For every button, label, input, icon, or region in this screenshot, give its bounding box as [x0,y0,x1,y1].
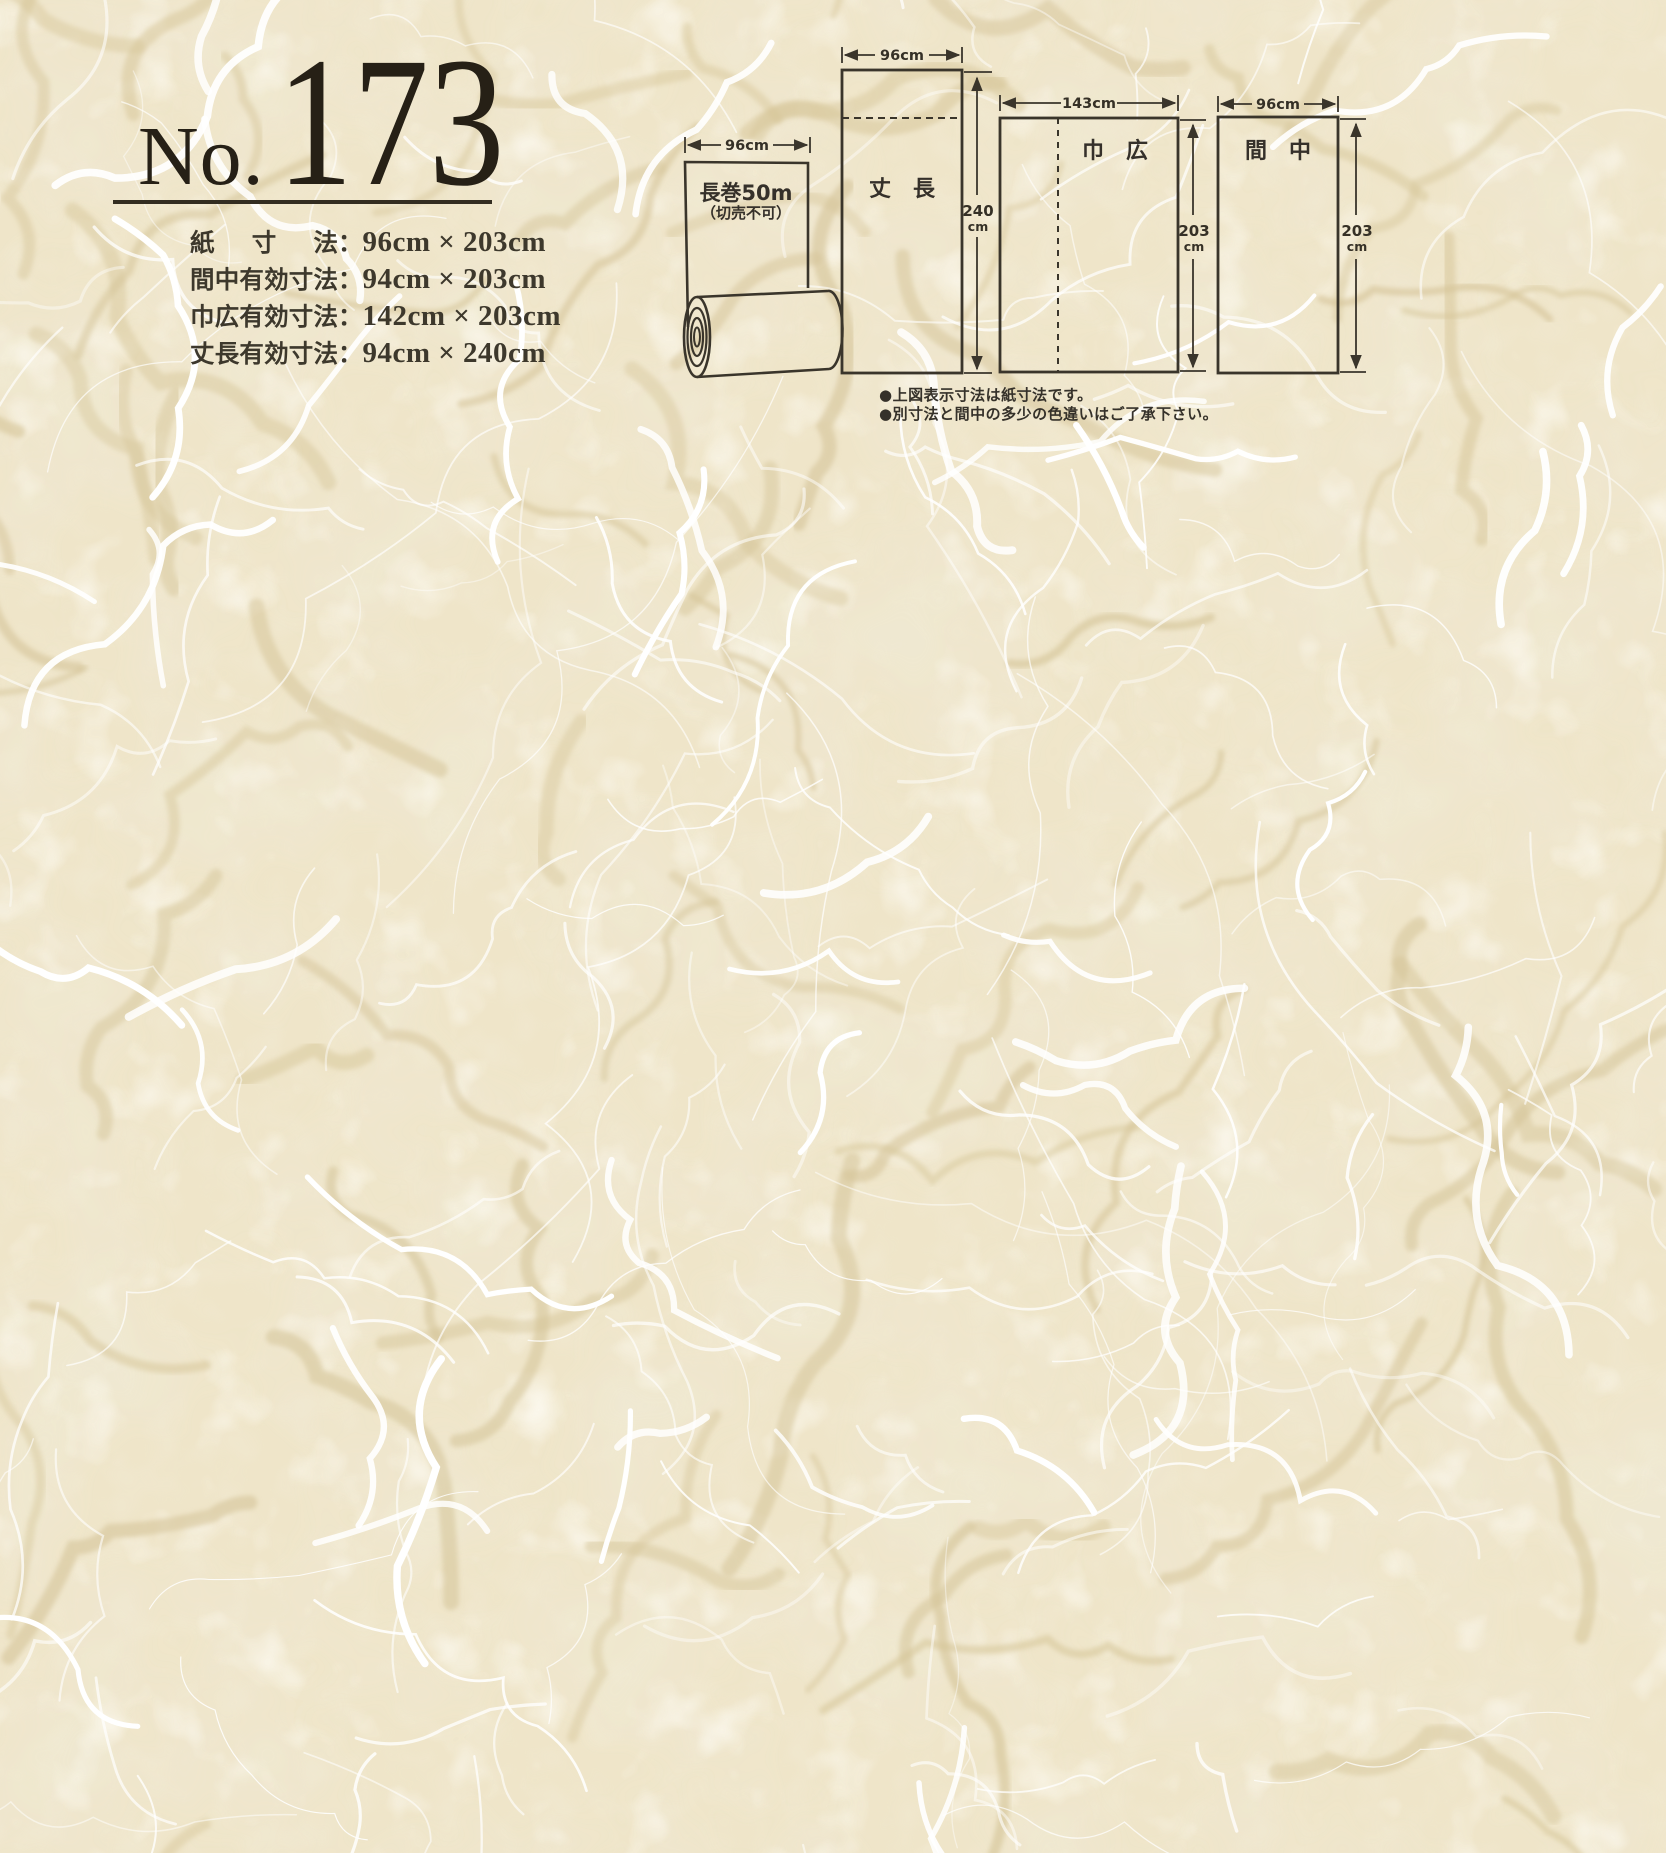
spec-label: 間中有効寸法 [190,262,338,299]
spec-row-manaka: 間中有効寸法：94cm × 203cm [190,261,517,298]
spec-row-habahiro: 巾広有効寸法：142cm × 203cm [190,298,517,335]
footnote-1: ●上図表示寸法は紙寸法です。 [879,386,1093,404]
takenaga-width-label: 96cm [880,48,924,64]
spec-value: 96cm × 203cm [363,224,517,261]
takenaga-height-unit: cm [968,219,988,234]
spec-label: 紙 寸 法 [190,225,338,262]
footnote-2: ●別寸法と間中の多少の色違いはご了承下さい。 [879,405,1218,423]
roll-end-cap [828,291,843,369]
takenaga-sheet-outline [842,70,962,373]
spec-colon: ： [338,304,363,331]
manaka-height-unit: cm [1347,239,1367,254]
manaka-height-value: 203 [1341,222,1372,240]
spec-colon: ： [338,230,363,257]
roll-width-label: 96cm [725,138,769,154]
manaka-width-label: 96cm [1256,97,1300,113]
habahiro-width-label: 143cm [1062,96,1116,112]
habahiro-diagram: 巾 広 143cm 203 cm [1000,95,1210,372]
roll-diagram: 96cm 長巻50m （切売不可） [684,137,843,377]
spec-value: 94cm × 240cm [363,335,517,372]
catalog-number: 173 [277,30,505,215]
spec-label: 巾広有効寸法 [190,299,338,336]
roll-title: 長巻50m [699,181,792,205]
catalog-page: No. 173 紙 寸 法：96cm × 203cm 間中有効寸法：94cm ×… [0,0,1666,1853]
spec-value: 142cm × 203cm [363,298,517,335]
manaka-diagram: 間 中 96cm 203 cm [1218,96,1373,373]
spec-value: 94cm × 203cm [363,261,517,298]
takenaga-label: 丈 長 [869,177,936,202]
roll-body-bottom [697,369,829,377]
catalog-no-prefix: No. [138,115,265,199]
dimension-diagrams: 96cm 長巻50m （切売不可） 丈 長 96cm 240 cm [545,25,1395,445]
title-underline [113,200,492,204]
title-block: No. 173 [138,30,554,215]
roll-core-ring [691,318,703,356]
manaka-label: 間 中 [1245,139,1311,164]
roll-subtitle: （切売不可） [701,204,791,222]
takenaga-height-value: 240 [962,202,993,220]
habahiro-height-value: 203 [1178,222,1209,240]
habahiro-height-unit: cm [1184,239,1204,254]
spec-label: 丈長有効寸法 [190,336,338,373]
spec-row-paper-size: 紙 寸 法：96cm × 203cm [190,224,517,261]
spec-colon: ： [338,267,363,294]
roll-body-top [697,291,828,297]
takenaga-diagram: 丈 長 96cm 240 cm [842,47,994,373]
spec-colon: ： [338,341,363,368]
spec-list: 紙 寸 法：96cm × 203cm 間中有効寸法：94cm × 203cm 巾… [190,224,517,372]
spec-row-takenaga: 丈長有効寸法：94cm × 240cm [190,335,517,372]
habahiro-label: 巾 広 [1082,138,1148,164]
roll-core-ring [694,328,700,347]
